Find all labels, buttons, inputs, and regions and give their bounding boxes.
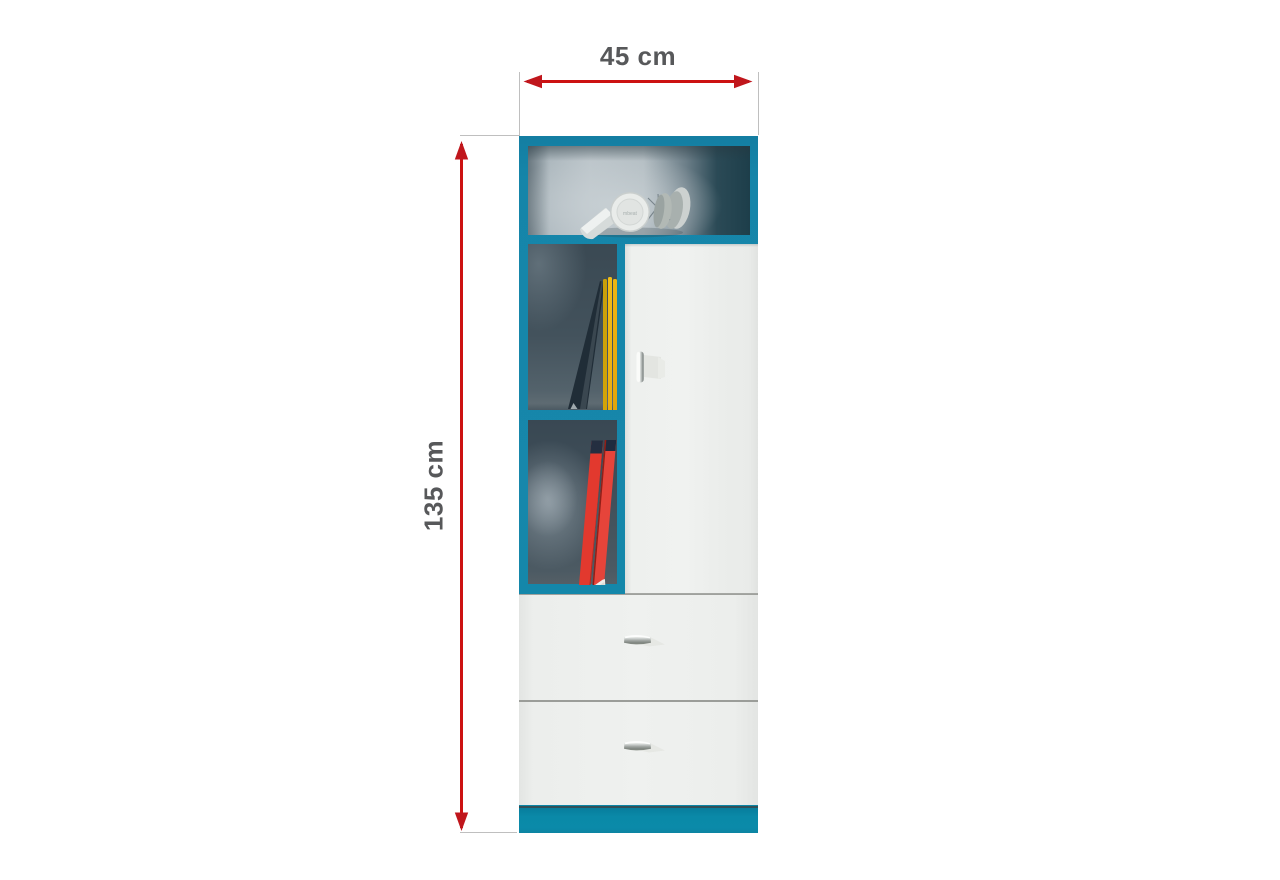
svg-text:mbeat: mbeat (623, 211, 638, 217)
